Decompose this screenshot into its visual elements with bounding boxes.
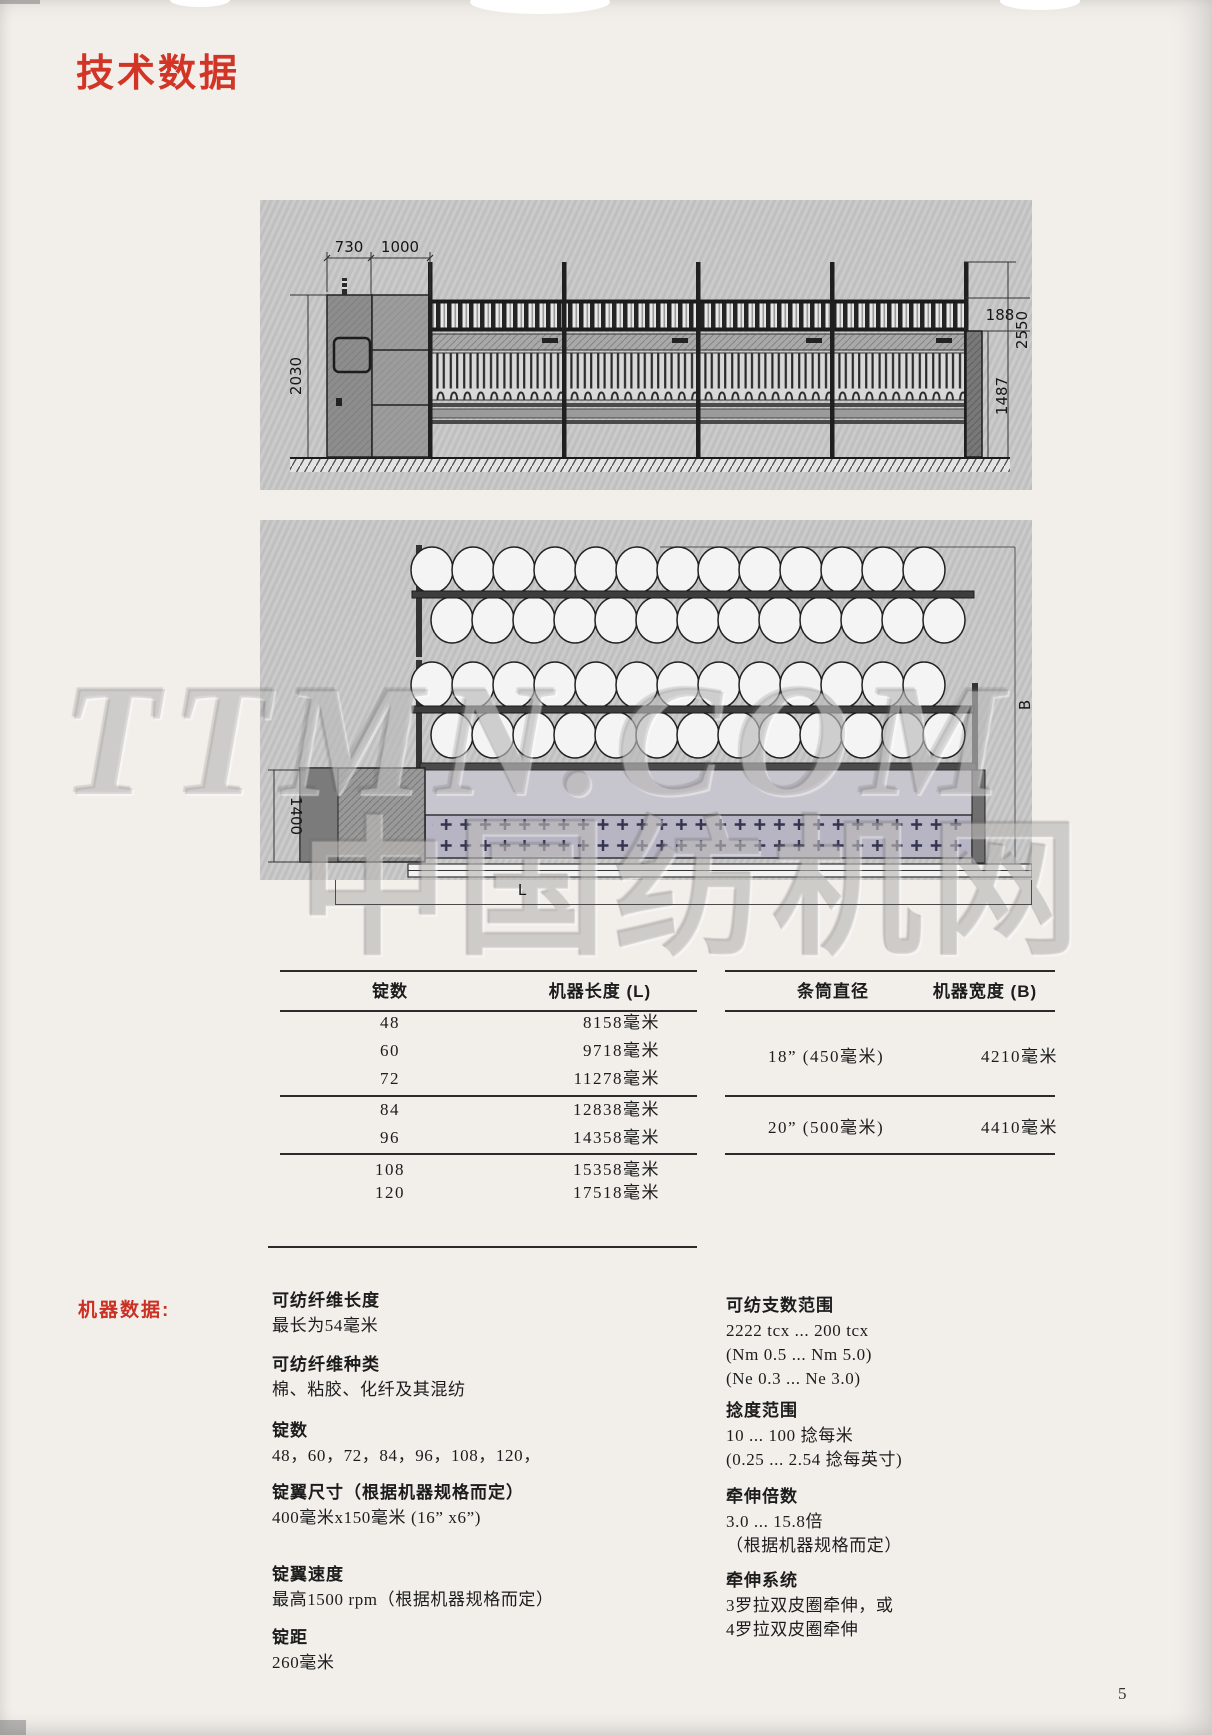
table-rule	[725, 1095, 1055, 1097]
spec-line: （根据机器规格而定）	[726, 1534, 1156, 1558]
spec-title: 可纺纤维长度	[272, 1288, 702, 1314]
scan-artifact	[170, 0, 230, 7]
machine-length-cell: 17518毫米	[430, 1179, 660, 1207]
table-rule	[725, 1153, 1055, 1155]
spec-line: 3罗拉双皮圈牵伸，或	[726, 1594, 1156, 1618]
machine-length-cell: 14358毫米	[430, 1124, 660, 1152]
spec-flyer-size: 锭翼尺寸（根据机器规格而定） 400毫米x150毫米 (16” x6”)	[272, 1480, 702, 1530]
spec-line: (Ne 0.3 ... Ne 3.0)	[726, 1367, 1156, 1391]
spec-line: 260毫米	[272, 1651, 702, 1675]
page-title: 技术数据	[76, 42, 240, 97]
machine-length-cell: 11278毫米	[430, 1065, 660, 1093]
end-frame-plan	[972, 770, 985, 863]
spec-title: 锭数	[272, 1418, 702, 1444]
spec-title: 锭距	[272, 1625, 702, 1651]
spec-title: 可纺纤维种类	[272, 1352, 702, 1378]
table-rule	[725, 1010, 1055, 1012]
machine-elevation-drawing	[260, 200, 1032, 490]
spec-line: 棉、粘胶、化纤及其混纺	[272, 1378, 702, 1402]
l-dimension-line	[335, 904, 1032, 905]
dim-2550: 2550	[1013, 311, 1031, 349]
spec-line: 4罗拉双皮圈牵伸	[726, 1618, 1156, 1642]
dim-1000: 1000	[381, 238, 419, 256]
spec-line: 400毫米x150毫米 (16” x6”)	[272, 1506, 702, 1530]
machine-length-cell: 9718毫米	[430, 1037, 660, 1065]
scan-artifact	[0, 0, 40, 4]
spindle-plus-row-1	[432, 816, 967, 837]
machine-data-label: 机器数据:	[78, 1295, 170, 1322]
spindle-plus-row-2	[438, 837, 967, 858]
spec-title: 捻度范围	[726, 1398, 1156, 1424]
spec-line: (Nm 0.5 ... Nm 5.0)	[726, 1343, 1156, 1367]
spec-fiber-type: 可纺纤维种类 棉、粘胶、化纤及其混纺	[272, 1352, 702, 1402]
spec-title: 牵伸系统	[726, 1568, 1156, 1594]
header-can-diameter: 条筒直径	[753, 978, 913, 1006]
spec-line: 48，60，72，84，96，108，120，	[272, 1444, 702, 1468]
table-rule	[725, 970, 1055, 972]
elevation-diagram-panel	[260, 200, 1032, 490]
spec-fiber-length: 可纺纤维长度 最长为54毫米	[272, 1288, 702, 1338]
plan-diagram-panel	[260, 520, 1032, 880]
machine-width-cell: 4410毫米	[898, 1114, 1058, 1142]
spec-draft-system: 牵伸系统 3罗拉双皮圈牵伸，或 4罗拉双皮圈牵伸	[726, 1568, 1156, 1642]
table-rule	[280, 1153, 697, 1155]
spec-line: 2222 tcx ... 200 tcx	[726, 1319, 1156, 1343]
scan-artifact	[0, 1720, 26, 1735]
dim-1400: 1400	[287, 797, 305, 835]
spec-twist-range: 捻度范围 10 ... 100 捻每米 (0.25 ... 2.54 捻每英寸)	[726, 1398, 1156, 1472]
spec-title: 锭翼速度	[272, 1562, 702, 1588]
can-group-front	[411, 660, 978, 772]
spec-title: 可纺支数范围	[726, 1293, 1156, 1319]
spec-line: 3.0 ... 15.8倍	[726, 1510, 1156, 1534]
spec-title: 牵伸倍数	[726, 1484, 1156, 1510]
dim-1487: 1487	[993, 377, 1011, 415]
table-rule	[268, 1246, 697, 1248]
dim-B: B	[1016, 700, 1034, 710]
dim-2030: 2030	[287, 357, 305, 395]
header-spindle-count: 锭数	[330, 978, 450, 1006]
spec-line: (0.25 ... 2.54 捻每英寸)	[726, 1448, 1156, 1472]
l-extension-right	[1031, 880, 1032, 905]
dim-L: L	[518, 881, 526, 899]
scan-artifact	[470, 0, 610, 14]
machine-plan-drawing	[260, 520, 1032, 880]
l-extension-left	[335, 880, 336, 905]
spec-flyer-speed: 锭翼速度 最高1500 rpm（根据机器规格而定）	[272, 1562, 702, 1612]
spec-title: 锭翼尺寸（根据机器规格而定）	[272, 1480, 702, 1506]
signal-lamp	[342, 278, 347, 295]
header-machine-length: 机器长度 (L)	[470, 978, 730, 1006]
spec-line: 10 ... 100 捻每米	[726, 1424, 1156, 1448]
spec-draft-ratio: 牵伸倍数 3.0 ... 15.8倍 （根据机器规格而定）	[726, 1484, 1156, 1558]
page-number: 5	[1118, 1684, 1127, 1704]
spec-spindle-gauge: 锭距 260毫米	[272, 1625, 702, 1675]
machine-width-cell: 4210毫米	[898, 1043, 1058, 1071]
table-rule	[280, 970, 697, 972]
spec-line: 最长为54毫米	[272, 1314, 702, 1338]
header-machine-width: 机器宽度 (B)	[905, 978, 1065, 1006]
can-group-rear	[411, 545, 974, 657]
machine-length-cell: 8158毫米	[430, 1009, 660, 1037]
machine-length-cell: 12838毫米	[430, 1096, 660, 1124]
headstock	[327, 278, 430, 457]
spec-count-range: 可纺支数范围 2222 tcx ... 200 tcx (Nm 0.5 ... …	[726, 1293, 1156, 1391]
dim-730: 730	[335, 238, 364, 256]
dim-188: 188	[986, 306, 1015, 324]
spec-line: 最高1500 rpm（根据机器规格而定）	[272, 1588, 702, 1612]
document-page: 技术数据	[0, 0, 1212, 1735]
spec-spindle-count: 锭数 48，60，72，84，96，108，120，	[272, 1418, 702, 1468]
machine-body-plan	[300, 763, 1032, 877]
scan-artifact	[1000, 0, 1080, 10]
